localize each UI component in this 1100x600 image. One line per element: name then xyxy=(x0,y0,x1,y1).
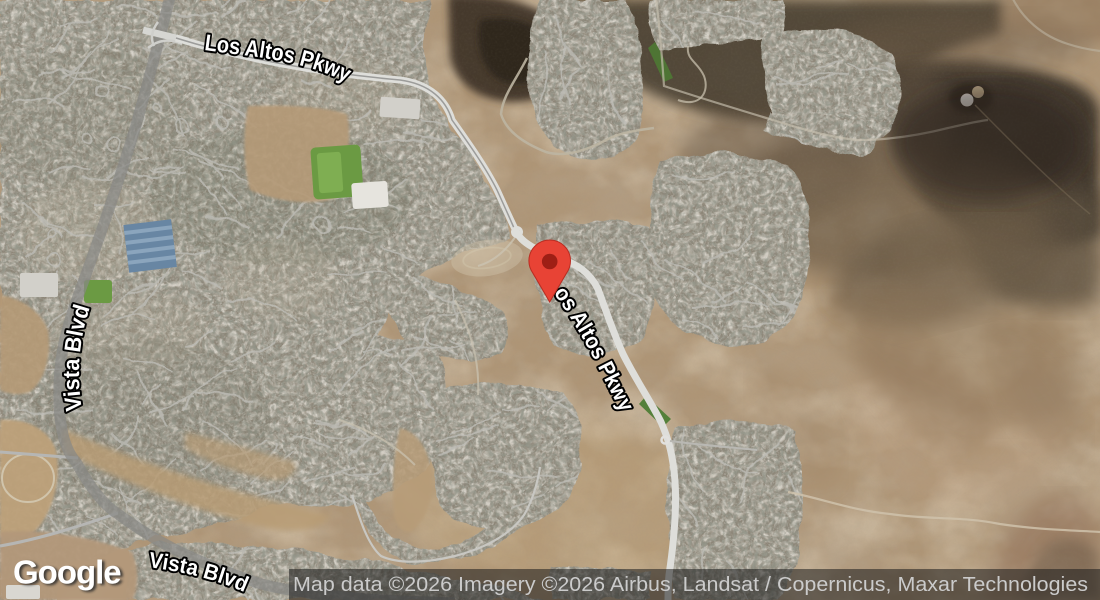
svg-text:Map data ©2026 Imagery ©2026 A: Map data ©2026 Imagery ©2026 Airbus, Lan… xyxy=(293,574,1088,596)
svg-text:Google: Google xyxy=(13,554,121,591)
